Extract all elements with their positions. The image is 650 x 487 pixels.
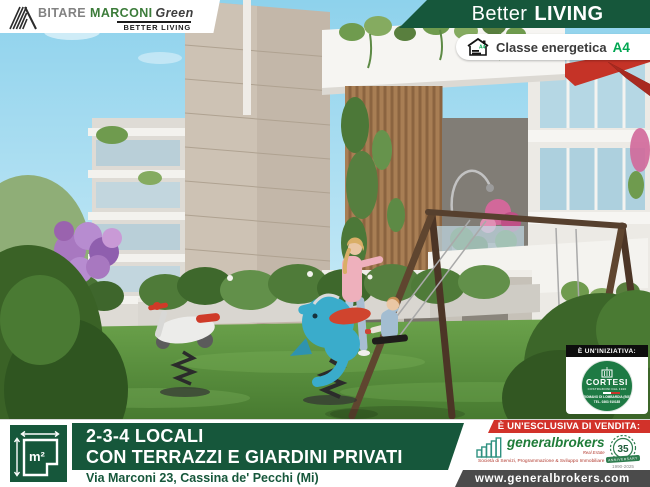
brand-part-marconi: MARCONI bbox=[90, 6, 153, 20]
brand-bar: BITAREMARCONIGreen BETTER LIVING bbox=[0, 0, 220, 33]
energy-class-value: A4 bbox=[613, 40, 630, 55]
agency-website-bar: www.generalbrokers.com bbox=[455, 470, 650, 487]
better-living-ribbon: Better LIVING bbox=[395, 0, 650, 28]
ribbon-word-better: Better bbox=[472, 3, 528, 26]
agency-name: generalbrokers bbox=[507, 436, 605, 450]
headline-line2: CON TERRAZZI E GIARDINI PRIVATI bbox=[86, 447, 464, 468]
agency-logo-row: generalbrokers Real Estate bbox=[476, 436, 605, 458]
svg-text:m²: m² bbox=[29, 449, 46, 464]
cortesi-logo: CORTESI COSTRUZIONI DAL 1920 ROMANO DI L… bbox=[581, 360, 633, 412]
real-estate-flyer: BITAREMARCONIGreen BETTER LIVING Better … bbox=[0, 0, 650, 487]
abitare-a-icon bbox=[8, 3, 38, 31]
energy-class-badge: A4 Classe energetica A4 bbox=[456, 34, 650, 60]
initiative-badge: È UN'INIZIATIVA: CORTESI COSTRUZIONI DAL… bbox=[566, 345, 648, 414]
energy-house-icon: A4 bbox=[466, 37, 490, 57]
ribbon-word-living: LIVING bbox=[534, 3, 603, 26]
agency-logo-area: generalbrokers Real Estate Società di Se… bbox=[470, 433, 650, 470]
headline-line1: 2-3-4 LOCALI bbox=[86, 426, 464, 447]
energy-label: Classe energetica bbox=[496, 40, 607, 55]
brand-part-green: Green bbox=[156, 6, 194, 20]
street-address: Via Marconi 23, Cassina de' Pecchi (Mi) bbox=[86, 471, 319, 485]
exclusive-sales-banner: È UN'ESCLUSIVA DI VENDITA: bbox=[488, 420, 650, 433]
floorplan-m2-icon: m² bbox=[10, 425, 67, 482]
brand-tagline: BETTER LIVING bbox=[117, 23, 191, 32]
svg-text:35: 35 bbox=[617, 444, 629, 455]
brand-part-abitare: BITARE bbox=[38, 6, 86, 20]
brand-wordmark: BITAREMARCONIGreen bbox=[38, 6, 194, 20]
cortesi-subtitle: COSTRUZIONI DAL 1920 bbox=[588, 387, 627, 391]
property-render bbox=[0, 0, 650, 487]
italian-flag-stripe bbox=[594, 392, 620, 394]
anniversary-badge: 35 ANNIVERSARY 1990-2025 bbox=[602, 433, 644, 470]
headline-box: 2-3-4 LOCALI CON TERRAZZI E GIARDINI PRI… bbox=[72, 423, 464, 470]
cortesi-card: CORTESI COSTRUZIONI DAL 1920 ROMANO DI L… bbox=[566, 357, 648, 414]
floorplan-tile: m² bbox=[10, 425, 67, 482]
svg-text:A4: A4 bbox=[479, 45, 486, 51]
agency-steps-icon bbox=[476, 436, 504, 458]
initiative-label: È UN'INIZIATIVA: bbox=[566, 345, 648, 357]
cortesi-phone: TEL. 0363 910185 bbox=[594, 400, 620, 405]
cortesi-name: CORTESI bbox=[586, 378, 628, 387]
svg-text:1990-2025: 1990-2025 bbox=[612, 464, 634, 469]
